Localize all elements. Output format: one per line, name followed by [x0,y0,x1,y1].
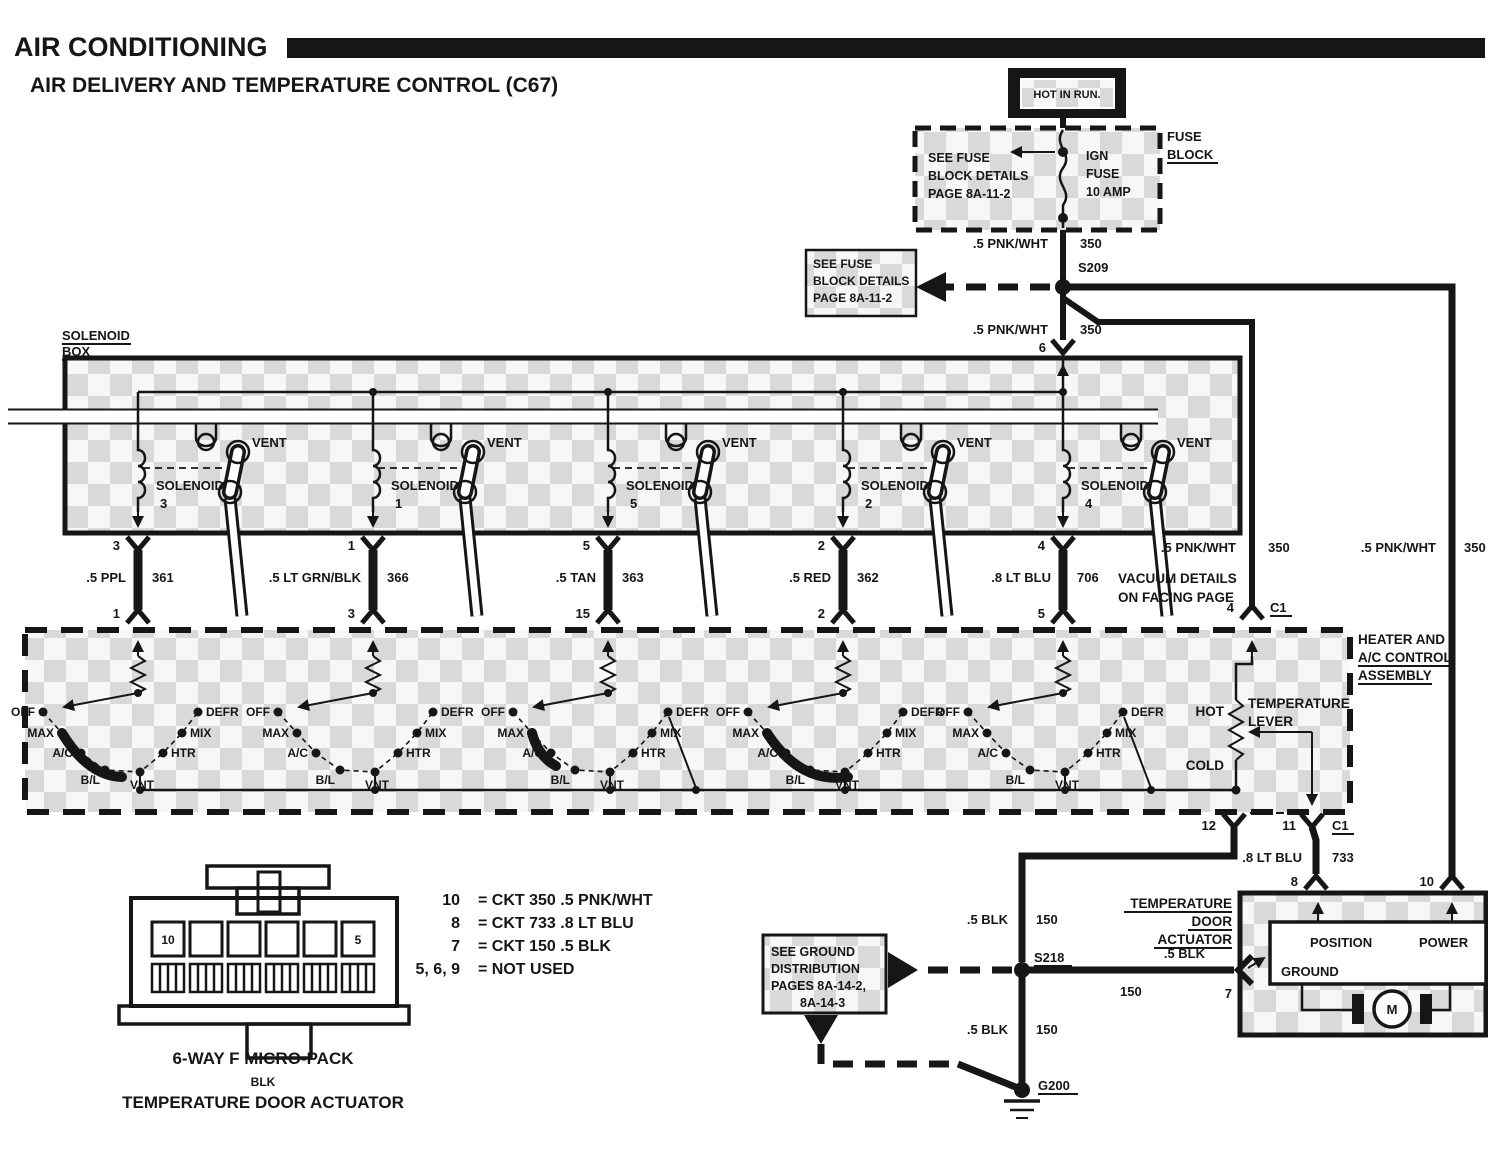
svg-text:MIX: MIX [190,726,211,740]
svg-text:3: 3 [113,538,120,553]
offpage-arrow-left [916,272,946,302]
svg-text:HTR: HTR [171,746,196,760]
svg-text:5: 5 [583,538,590,553]
svg-text:4: 4 [1038,538,1046,553]
svg-text:BLOCK DETAILS: BLOCK DETAILS [928,169,1028,183]
svg-text:2: 2 [818,538,825,553]
svg-text:150: 150 [1036,912,1058,927]
offpage-arrow-down [804,1015,838,1044]
svg-text:BLK: BLK [251,1075,276,1089]
svg-text:MAX: MAX [262,726,289,740]
svg-text:B/L: B/L [1006,773,1025,787]
svg-text:MIX: MIX [660,726,681,740]
svg-text:HTR: HTR [406,746,431,760]
svg-text:LEVER: LEVER [1248,714,1293,729]
wiring-diagram-page: AIR CONDITIONING AIR DELIVERY AND TEMPER… [0,0,1488,1152]
svg-text:OFF: OFF [481,705,505,719]
svg-text:4: 4 [1085,496,1093,511]
svg-text:MIX: MIX [425,726,446,740]
svg-text:SOLENOID: SOLENOID [156,478,224,493]
wire-733 [1312,827,1316,874]
svg-text:15: 15 [576,606,590,621]
legend-pin: 10 [442,892,460,909]
legend-desc: = CKT 350 .5 PNK/WHT [478,892,653,909]
header: AIR CONDITIONING AIR DELIVERY AND TEMPER… [14,32,1485,97]
position-label: POSITION [1310,935,1372,950]
svg-text:10 AMP: 10 AMP [1086,185,1131,199]
svg-text:B/L: B/L [316,773,335,787]
svg-text:DISTRIBUTION: DISTRIBUTION [771,962,860,976]
page-subtitle: AIR DELIVERY AND TEMPERATURE CONTROL (C6… [30,74,558,97]
wire-label: .5 PNK/WHT [973,236,1048,251]
svg-text:.8 LT BLU: .8 LT BLU [1242,850,1302,865]
offpage-arrow-ground [888,952,918,988]
svg-text:B/L: B/L [551,773,570,787]
page-title: AIR CONDITIONING [14,32,268,62]
c1-label: C1 [1270,600,1287,615]
pin4-label: 4 [1227,600,1235,615]
g200-label: G200 [1038,1078,1070,1093]
svg-text:5: 5 [1038,606,1045,621]
svg-text:SOLENOID: SOLENOID [861,478,929,493]
svg-text:.5 PNK/WHT: .5 PNK/WHT [1361,540,1436,555]
vent-label: VENT [487,435,522,450]
pin10-label: 10 [1420,874,1434,889]
connector-caption: 6-WAY F MICRO-PACK [172,1049,354,1068]
svg-text:OFF: OFF [11,705,35,719]
connector-face-view: 10 5 6-WAY F MICRO-PACK BLK TEMPERATURE … [119,866,409,1112]
svg-text:MIX: MIX [1115,726,1136,740]
pin6-connector [1052,340,1074,353]
svg-text:.5 LT GRN/BLK: .5 LT GRN/BLK [269,570,362,585]
svg-text:3: 3 [160,496,167,511]
svg-text:.5 TAN: .5 TAN [556,570,596,585]
assembly-label: HEATER AND [1358,632,1445,647]
svg-text:= CKT 150 .5 BLK: = CKT 150 .5 BLK [478,938,611,955]
svg-text:A/C: A/C [757,746,778,760]
pin6-label: 6 [1039,340,1046,355]
svg-text:1: 1 [113,606,120,621]
svg-text:7: 7 [451,938,460,955]
vacuum-note: VACUUM DETAILS [1118,571,1237,586]
fuse-block-label: FUSE [1167,129,1202,144]
ground-label: GROUND [1281,964,1339,979]
svg-text:C1: C1 [1332,818,1349,833]
svg-text:DEFR: DEFR [676,705,709,719]
svg-text:A/C: A/C [977,746,998,760]
svg-text:.5 RED: .5 RED [789,570,831,585]
svg-text:VNT: VNT [835,778,860,792]
svg-text:ASSEMBLY: ASSEMBLY [1358,668,1432,683]
svg-text:VNT: VNT [1055,778,1080,792]
svg-text:ON FACING PAGE: ON FACING PAGE [1118,590,1234,605]
vacuum-channel [8,410,1158,423]
svg-text:HTR: HTR [1096,746,1121,760]
svg-text:.5 BLK: .5 BLK [967,912,1009,927]
svg-text:8: 8 [451,915,460,932]
svg-text:5, 6, 9: 5, 6, 9 [416,961,461,978]
svg-text:SOLENOID: SOLENOID [391,478,459,493]
svg-text:MAX: MAX [952,726,979,740]
svg-text:VNT: VNT [600,778,625,792]
ign-fuse-label: IGN [1086,149,1108,163]
svg-text:SOLENOID: SOLENOID [1081,478,1149,493]
svg-text:3: 3 [348,606,355,621]
motor-m: M [1387,1002,1398,1017]
svg-text:MIX: MIX [895,726,916,740]
svg-text:350: 350 [1080,236,1102,251]
svg-text:350: 350 [1268,540,1290,555]
svg-text:363: 363 [622,570,644,585]
vent-label: VENT [722,435,757,450]
wire-ckt: 361 [152,570,174,585]
svg-text:B/L: B/L [81,773,100,787]
pin12-label: 12 [1202,818,1216,833]
svg-text:A/C: A/C [522,746,543,760]
svg-text:DEFR: DEFR [206,705,239,719]
svg-text:BLOCK DETAILS: BLOCK DETAILS [813,274,909,288]
temp-lever-label: TEMPERATURE [1248,696,1350,711]
svg-text:DEFR: DEFR [1131,705,1164,719]
svg-text:150: 150 [1120,984,1142,999]
svg-text:ACTUATOR: ACTUATOR [1158,932,1233,947]
svg-text:8A-14-3: 8A-14-3 [800,996,845,1010]
svg-text:OFF: OFF [716,705,740,719]
svg-text:350: 350 [1464,540,1486,555]
svg-text:MAX: MAX [732,726,759,740]
svg-text:.5 BLK: .5 BLK [967,1022,1009,1037]
actuator-label: TEMPERATURE [1130,896,1232,911]
svg-text:OFF: OFF [246,705,270,719]
svg-text:PAGE 8A-11-2: PAGE 8A-11-2 [813,291,892,305]
svg-text:DOOR: DOOR [1192,914,1233,929]
svg-text:BLOCK: BLOCK [1167,147,1214,162]
pin8-label: 8 [1291,874,1298,889]
svg-text:A/C: A/C [52,746,73,760]
title-bar [287,38,1485,58]
svg-text:OFF: OFF [936,705,960,719]
svg-text:DEFR: DEFR [441,705,474,719]
ground-ref-note: SEE GROUND [771,945,855,959]
svg-text:733: 733 [1332,850,1354,865]
vent-label: VENT [252,435,287,450]
svg-text:2: 2 [818,606,825,621]
solenoid-box-label: SOLENOID [62,328,130,343]
svg-text:.5 BLK: .5 BLK [1164,946,1206,961]
hot-label: HOT [1196,704,1225,719]
pin7-label: 7 [1225,986,1232,1001]
svg-text:= CKT 733 .8 LT BLU: = CKT 733 .8 LT BLU [478,915,634,932]
assembly-outline [25,630,1350,812]
ground-distribution: .5 BLK 150 S218 SEE GROUND DISTRIBUTION … [763,935,1234,1118]
svg-text:366: 366 [387,570,409,585]
splice-s218: S218 [1034,950,1064,965]
svg-text:PAGES 8A-14-2,: PAGES 8A-14-2, [771,979,866,993]
hot-in-run-label: HOT IN RUN. [1033,89,1100,101]
svg-text:2: 2 [865,496,872,511]
svg-text:150: 150 [1036,1022,1058,1037]
svg-text:.8 LT BLU: .8 LT BLU [991,570,1051,585]
power-label: POWER [1419,935,1469,950]
svg-text:PAGE 8A-11-2: PAGE 8A-11-2 [928,187,1010,201]
svg-text:5: 5 [630,496,637,511]
svg-text:.5 PNK/WHT: .5 PNK/WHT [973,322,1048,337]
cold-label: COLD [1186,758,1224,773]
solenoid-box: SOLENOID BOX [8,328,1240,533]
legend: 10 = CKT 350 .5 PNK/WHT 8 = CKT 733 .8 L… [416,892,653,978]
svg-text:B/L: B/L [786,773,805,787]
svg-text:706: 706 [1077,570,1099,585]
svg-text:HTR: HTR [876,746,901,760]
svg-text:MAX: MAX [27,726,54,740]
vent-label: VENT [957,435,992,450]
cavity-5: 5 [355,933,362,947]
interconnect-wires: 3 .5 PPL 361 1 1 .5 LT GRN/BLK 366 3 5 .… [86,537,1485,623]
pin11-label: 11 [1282,818,1296,833]
svg-text:HTR: HTR [641,746,666,760]
svg-text:SOLENOID: SOLENOID [626,478,694,493]
svg-text:TEMPERATURE DOOR ACTUATOR: TEMPERATURE DOOR ACTUATOR [122,1093,404,1112]
svg-text:1: 1 [348,538,355,553]
fuse-ref-note: SEE FUSE [813,257,872,271]
svg-text:A/C: A/C [287,746,308,760]
svg-text:.5 PNK/WHT: .5 PNK/WHT [1161,540,1236,555]
cavity-10: 10 [161,933,175,947]
splice-s209: S209 [1078,260,1108,275]
vent-label: VENT [1177,435,1212,450]
control-assembly: HEATER AND A/C CONTROL ASSEMBLY OFF MAX … [11,630,1452,812]
svg-text:VNT: VNT [365,778,390,792]
svg-text:A/C CONTROL: A/C CONTROL [1358,650,1452,665]
air-conditioning-schematic: AIR CONDITIONING AIR DELIVERY AND TEMPER… [0,0,1488,1152]
svg-text:362: 362 [857,570,879,585]
svg-text:FUSE: FUSE [1086,167,1119,181]
svg-text:MAX: MAX [497,726,524,740]
svg-text:1: 1 [395,496,402,511]
svg-text:= NOT USED: = NOT USED [478,961,574,978]
svg-text:VNT: VNT [130,778,155,792]
fuse-note: SEE FUSE [928,151,990,165]
wire-color: .5 PPL [86,570,126,585]
